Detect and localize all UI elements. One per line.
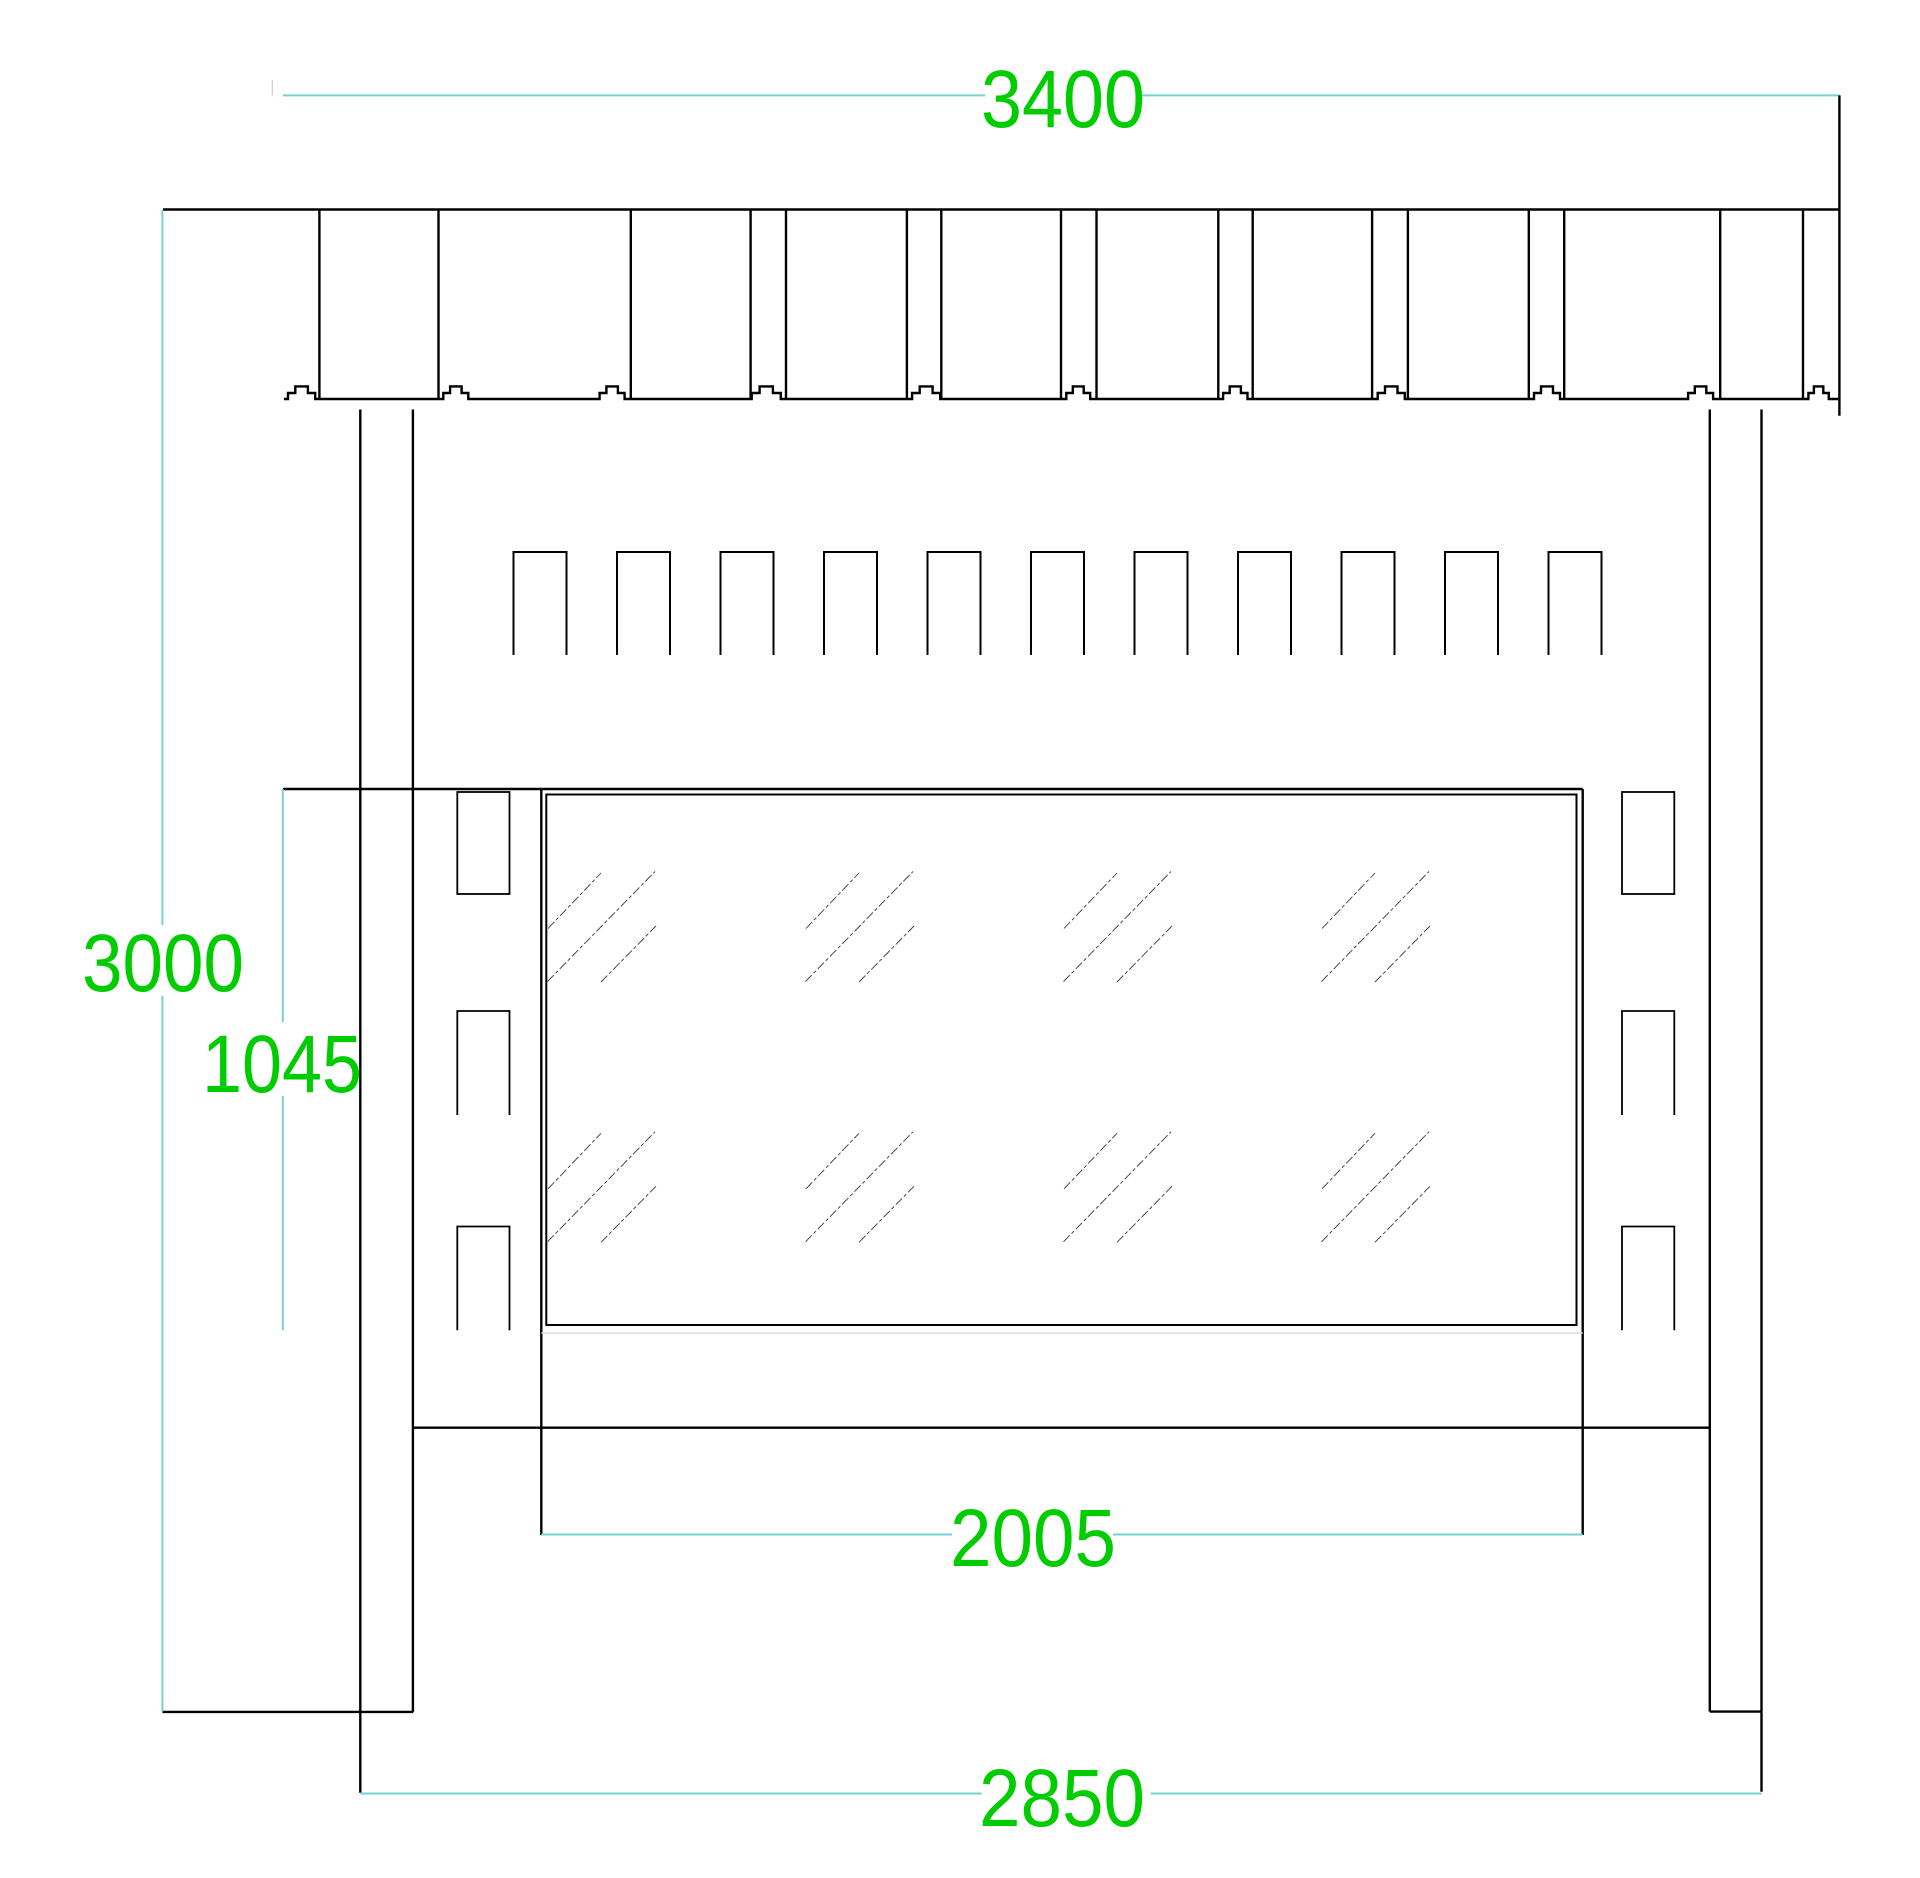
svg-text:2850: 2850 [979,1753,1145,1844]
svg-text:1045: 1045 [202,1019,362,1110]
svg-text:3400: 3400 [981,54,1145,145]
svg-text:2005: 2005 [950,1493,1116,1584]
svg-text:3000: 3000 [82,918,244,1009]
